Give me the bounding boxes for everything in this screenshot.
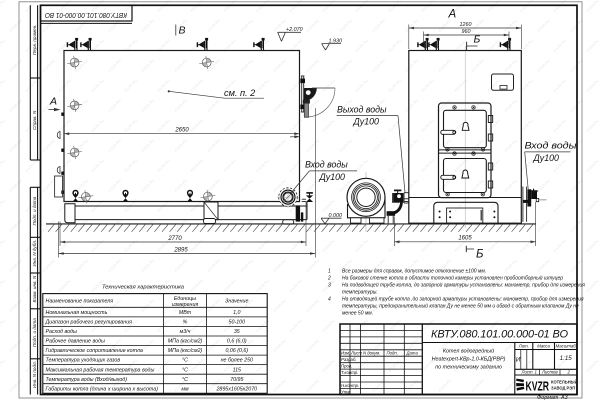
svg-text:Б: Б: [476, 249, 484, 261]
svg-text:KVZR: KVZR: [526, 379, 550, 394]
svg-text:KVZR.RU: KVZR.RU: [586, 238, 600, 252]
svg-text:KVZR.RU: KVZR.RU: [586, 198, 600, 212]
svg-text:KVZR.RU: KVZR.RU: [141, 298, 155, 312]
svg-text:+2.070: +2.070: [286, 27, 303, 33]
svg-text:KVZR.RU: KVZR.RU: [471, 138, 485, 152]
svg-text:Значение: Значение: [225, 299, 248, 305]
svg-text:KVZR.RU: KVZR.RU: [504, 18, 518, 32]
svg-text:МПа (кгс/см2): МПа (кгс/см2): [168, 348, 203, 354]
svg-text:мм: мм: [181, 386, 189, 392]
svg-text:KVZR.RU: KVZR.RU: [273, 98, 287, 112]
svg-text:KVZR.RU: KVZR.RU: [586, 278, 600, 292]
svg-text:KVZR.RU: KVZR.RU: [322, 358, 336, 372]
svg-text:Инв. N подл.: Инв. N подл.: [32, 361, 37, 388]
svg-text:KVZR.RU: KVZR.RU: [289, 158, 303, 172]
svg-text:KVZR.RU: KVZR.RU: [504, 258, 518, 272]
svg-text:%: %: [183, 320, 188, 326]
svg-text:°С: °С: [182, 377, 188, 383]
svg-text:KVZR.RU: KVZR.RU: [537, 218, 551, 232]
svg-text:KVZR.RU: KVZR.RU: [42, 138, 56, 152]
svg-text:KVZR.RU: KVZR.RU: [157, 158, 171, 172]
svg-text:KVZR.RU: KVZR.RU: [207, 258, 221, 272]
svg-text:KVZR.RU: KVZR.RU: [190, 318, 204, 332]
svg-text:0,6 (6,0): 0,6 (6,0): [227, 339, 247, 345]
svg-text:KVZR.RU: KVZR.RU: [405, 178, 419, 192]
svg-text:KVZR.RU: KVZR.RU: [58, 78, 72, 92]
svg-text:KVZR.RU: KVZR.RU: [91, 118, 105, 132]
svg-text:KVZR.RU: KVZR.RU: [256, 318, 270, 332]
svg-text:KVZR.RU: KVZR.RU: [58, 278, 72, 292]
svg-text:Лист: Лист: [350, 351, 362, 356]
svg-text:KVZR.RU: KVZR.RU: [372, 138, 386, 152]
svg-text:Утв.: Утв.: [341, 389, 351, 394]
svg-text:KVZR.RU: KVZR.RU: [207, 138, 221, 152]
svg-text:Лист: Лист: [521, 370, 533, 375]
svg-text:KVZR.RU: KVZR.RU: [586, 0, 600, 13]
svg-text:KVZR.RU: KVZR.RU: [454, 198, 468, 212]
svg-text:KVZR.RU: KVZR.RU: [553, 198, 567, 212]
svg-text:KVZR.RU: KVZR.RU: [75, 258, 89, 272]
svg-text:КОТЕЛЬНЫЙ: КОТЕЛЬНЫЙ: [551, 380, 578, 385]
svg-text:KVZR.RU: KVZR.RU: [174, 178, 188, 192]
svg-text:KVZR.RU: KVZR.RU: [174, 138, 188, 152]
svg-text:KVZR.RU: KVZR.RU: [174, 258, 188, 272]
svg-text:KVZR.RU: KVZR.RU: [9, 58, 23, 72]
svg-text:°С: °С: [182, 358, 188, 364]
svg-text:KVZR.RU: KVZR.RU: [190, 158, 204, 172]
svg-text:температуры.: температуры.: [342, 290, 378, 296]
svg-text:KVZR.RU: KVZR.RU: [174, 98, 188, 112]
svg-text:KVZR.RU: KVZR.RU: [108, 178, 122, 192]
svg-text:1605: 1605: [458, 236, 472, 242]
svg-text:KVZR.RU: KVZR.RU: [537, 58, 551, 72]
svg-text:KVZR.RU: KVZR.RU: [25, 78, 39, 92]
svg-text:KVZR.RU: KVZR.RU: [273, 18, 287, 32]
svg-text:KVZR.RU: KVZR.RU: [9, 98, 23, 112]
svg-text:KVZR.RU: KVZR.RU: [586, 358, 600, 372]
svg-text:KVZR.RU: KVZR.RU: [108, 258, 122, 272]
svg-text:KVZR.RU: KVZR.RU: [9, 338, 23, 352]
svg-text:KVZR.RU: KVZR.RU: [372, 18, 386, 32]
svg-text:KVZR.RU: KVZR.RU: [306, 18, 320, 32]
svg-text:KVZR.RU: KVZR.RU: [438, 138, 452, 152]
svg-text:KVZR.RU: KVZR.RU: [42, 258, 56, 272]
svg-text:KVZR.RU: KVZR.RU: [504, 98, 518, 112]
svg-text:KVZR.RU: KVZR.RU: [504, 378, 518, 392]
svg-text:KVZR.RU: KVZR.RU: [25, 158, 39, 172]
svg-text:KVZR.RU: KVZR.RU: [586, 318, 600, 332]
svg-text:KVZR.RU: KVZR.RU: [9, 138, 23, 152]
svg-text:Вход воды: Вход воды: [305, 160, 348, 170]
svg-text:Б: Б: [474, 34, 481, 46]
svg-text:KVZR.RU: KVZR.RU: [405, 378, 419, 392]
svg-text:Листов: Листов: [541, 370, 558, 375]
svg-text:Взам. инв. N: Взам. инв. N: [32, 275, 37, 302]
svg-text:KVZR.RU: KVZR.RU: [355, 78, 369, 92]
svg-text:KVZR.RU: KVZR.RU: [124, 158, 138, 172]
svg-text:KVZR.RU: KVZR.RU: [91, 158, 105, 172]
svg-text:KVZR.RU: KVZR.RU: [9, 178, 23, 192]
svg-text:KVZR.RU: KVZR.RU: [421, 78, 435, 92]
svg-text:KVZR.RU: KVZR.RU: [240, 98, 254, 112]
svg-text:KVZR.RU: KVZR.RU: [223, 118, 237, 132]
svg-text:KVZR.RU: KVZR.RU: [207, 98, 221, 112]
svg-text:KVZR.RU: KVZR.RU: [0, 78, 6, 92]
svg-text:МПа (кгс/см2): МПа (кгс/см2): [168, 339, 203, 345]
svg-text:А3: А3: [560, 395, 568, 400]
svg-text:Температура уходящих газов: Температура уходящих газов: [46, 358, 121, 364]
svg-text:35: 35: [234, 329, 240, 335]
svg-text:0.000: 0.000: [329, 213, 343, 219]
svg-text:N докум.: N докум.: [363, 351, 380, 356]
svg-text:Вход воды: Вход воды: [525, 141, 577, 151]
svg-text:KVZR.RU: KVZR.RU: [553, 118, 567, 132]
svg-text:KVZR.RU: KVZR.RU: [141, 138, 155, 152]
svg-text:KVZR.RU: KVZR.RU: [438, 378, 452, 392]
svg-text:А: А: [49, 96, 57, 108]
svg-text:Гидравлическое сопротивление к: Гидравлическое сопротивление котла: [46, 348, 143, 354]
svg-text:по техническому заданию: по техническому заданию: [435, 364, 502, 370]
svg-text:KVZR.RU: KVZR.RU: [256, 358, 270, 372]
svg-text:1:15: 1:15: [560, 355, 573, 362]
svg-text:2895: 2895: [173, 247, 188, 253]
svg-text:KVZR.RU: KVZR.RU: [207, 298, 221, 312]
svg-text:KVZR.RU: KVZR.RU: [223, 158, 237, 172]
svg-text:Изм.: Изм.: [341, 351, 350, 356]
svg-text:KVZR.RU: KVZR.RU: [322, 118, 336, 132]
svg-text:KVZR.RU: KVZR.RU: [322, 238, 336, 252]
svg-text:KVZR.RU: KVZR.RU: [322, 198, 336, 212]
svg-text:115: 115: [233, 367, 241, 373]
svg-text:KVZR.RU: KVZR.RU: [289, 238, 303, 252]
svg-text:2895х1605х2070: 2895х1605х2070: [215, 386, 257, 392]
svg-text:Техническая характеристика: Техническая характеристика: [102, 285, 185, 291]
svg-text:Пров.: Пров.: [341, 364, 352, 369]
svg-text:KVZR.RU: KVZR.RU: [207, 18, 221, 32]
svg-text:KVZR.RU: KVZR.RU: [520, 238, 534, 252]
svg-text:см. п. 2: см. п. 2: [224, 88, 255, 98]
svg-text:KVZR.RU: KVZR.RU: [124, 118, 138, 132]
svg-text:KVZR.RU: KVZR.RU: [537, 98, 551, 112]
svg-text:KVZR.RU: KVZR.RU: [520, 38, 534, 52]
svg-text:KVZR.RU: KVZR.RU: [256, 278, 270, 292]
svg-text:KVZR.RU: KVZR.RU: [108, 138, 122, 152]
svg-text:KVZR.RU: KVZR.RU: [289, 358, 303, 372]
svg-text:KVZR.RU: KVZR.RU: [471, 18, 485, 32]
svg-text:KVZR.RU: KVZR.RU: [0, 358, 6, 372]
svg-text:KVZR.RU: KVZR.RU: [273, 138, 287, 152]
svg-text:3: 3: [328, 283, 331, 289]
svg-text:КВТУ.080.101.00.000-01 ВО: КВТУ.080.101.00.000-01 ВО: [431, 328, 568, 340]
svg-text:960: 960: [462, 29, 471, 35]
svg-text:KVZR.RU: KVZR.RU: [388, 358, 402, 372]
svg-text:KVZR.RU: KVZR.RU: [256, 158, 270, 172]
svg-text:KVZR.RU: KVZR.RU: [223, 278, 237, 292]
svg-text:температуры, предохранительный: температуры, предохранительный клапан Ду…: [342, 303, 579, 310]
svg-text:KVZR.RU: KVZR.RU: [339, 58, 353, 72]
svg-text:KVZR.RU: KVZR.RU: [586, 38, 600, 52]
svg-text:Ду100: Ду100: [319, 172, 345, 182]
svg-text:KVZR.RU: KVZR.RU: [124, 238, 138, 252]
svg-text:KVZR.RU: KVZR.RU: [504, 58, 518, 72]
svg-text:Диапазон рабочего регулировани: Диапазон рабочего регулирования: [45, 320, 133, 326]
svg-text:KVZR.RU: KVZR.RU: [388, 38, 402, 52]
svg-text:Т.контр.: Т.контр.: [341, 370, 358, 375]
svg-text:KVZR.RU: KVZR.RU: [0, 198, 6, 212]
svg-text:1: 1: [328, 269, 331, 275]
svg-text:KVZR.RU: KVZR.RU: [537, 18, 551, 32]
svg-text:KVZR.RU: KVZR.RU: [306, 258, 320, 272]
svg-text:0,06 (0,6): 0,06 (0,6): [225, 348, 248, 354]
svg-text:KVZR.RU: KVZR.RU: [471, 178, 485, 192]
svg-text:KVZR.RU: KVZR.RU: [141, 58, 155, 72]
svg-text:Подп. и дата: Подп. и дата: [32, 318, 37, 347]
svg-text:2650: 2650: [174, 128, 189, 134]
svg-text:KVZR.RU: KVZR.RU: [355, 158, 369, 172]
svg-text:KVZR.RU: KVZR.RU: [339, 18, 353, 32]
svg-text:4: 4: [328, 297, 331, 303]
svg-text:Лит.: Лит.: [518, 344, 529, 349]
svg-text:KVZR.RU: KVZR.RU: [553, 78, 567, 92]
svg-text:KVZR.RU: KVZR.RU: [42, 178, 56, 192]
svg-text:KVZR.RU: KVZR.RU: [207, 178, 221, 192]
svg-text:KVZR.RU: KVZR.RU: [0, 118, 6, 132]
svg-text:не более 250: не более 250: [221, 358, 253, 364]
svg-text:KVZR.RU: KVZR.RU: [157, 118, 171, 132]
svg-text:KVZR.RU: KVZR.RU: [471, 58, 485, 72]
svg-text:МВт: МВт: [179, 310, 192, 316]
svg-text:KVZR.RU: KVZR.RU: [438, 18, 452, 32]
svg-text:KVZR.RU: KVZR.RU: [388, 238, 402, 252]
svg-text:KVZR.RU: KVZR.RU: [0, 38, 6, 52]
svg-text:KVZR.RU: KVZR.RU: [438, 218, 452, 232]
svg-text:KVZR.RU: KVZR.RU: [9, 258, 23, 272]
svg-text:KVZR.RU: KVZR.RU: [0, 158, 6, 172]
svg-text:Котел водогрейный: Котел водогрейный: [443, 347, 494, 354]
svg-text:KVZR.RU: KVZR.RU: [504, 138, 518, 152]
svg-text:KVZR.RU: KVZR.RU: [405, 218, 419, 232]
svg-text:KVZR.RU: KVZR.RU: [141, 258, 155, 272]
svg-text:KVZR.RU: KVZR.RU: [520, 118, 534, 132]
svg-text:KVZR.RU: KVZR.RU: [9, 298, 23, 312]
svg-text:KVZR.RU: KVZR.RU: [553, 38, 567, 52]
svg-text:KVZR.RU: KVZR.RU: [190, 78, 204, 92]
svg-text:KVZR.RU: KVZR.RU: [487, 118, 501, 132]
svg-text:KVZR.RU: KVZR.RU: [108, 98, 122, 112]
svg-text:На отводящей трубе котла ,до з: На отводящей трубе котла ,до запорной ар…: [342, 296, 584, 303]
svg-text:Рабочее давление воды: Рабочее давление воды: [46, 339, 105, 345]
svg-text:KVZR.RU: KVZR.RU: [91, 78, 105, 92]
svg-text:KVZR.RU: KVZR.RU: [355, 38, 369, 52]
svg-text:KVZR.RU: KVZR.RU: [9, 378, 23, 392]
svg-text:KVZR.RU: KVZR.RU: [223, 238, 237, 252]
svg-text:KVZR.RU: KVZR.RU: [174, 58, 188, 72]
svg-text:KVZR.RU: KVZR.RU: [256, 78, 270, 92]
svg-text:KVZR.RU: KVZR.RU: [421, 118, 435, 132]
svg-text:KVZR.RU: KVZR.RU: [438, 58, 452, 72]
svg-text:Все размеры для справок, допус: Все размеры для справок, допустимое откл…: [342, 269, 486, 275]
svg-text:KVZR.RU: KVZR.RU: [306, 298, 320, 312]
svg-text:Справ. N: Справ. N: [32, 110, 37, 130]
svg-text:KVZR.RU: KVZR.RU: [487, 198, 501, 212]
svg-text:KVZR.RU: KVZR.RU: [421, 158, 435, 172]
svg-text:KVZR.RU: KVZR.RU: [487, 158, 501, 172]
svg-text:Инв. N дубл.: Инв. N дубл.: [32, 240, 37, 267]
svg-text:KVZR.RU: KVZR.RU: [504, 338, 518, 352]
svg-text:1: 1: [535, 370, 538, 375]
svg-text:Дата: Дата: [406, 351, 419, 356]
svg-text:KVZR.RU: KVZR.RU: [421, 198, 435, 212]
svg-text:На боковой стенке котла в обла: На боковой стенке котла в области топочн…: [342, 275, 563, 282]
svg-text:Ду100: Ду100: [533, 153, 559, 163]
svg-text:1,0: 1,0: [233, 310, 240, 316]
svg-text:KVZR.RU: KVZR.RU: [240, 138, 254, 152]
svg-text:Н.контр.: Н.контр.: [341, 383, 359, 388]
svg-text:Габариты котла (длина х ширина: Габариты котла (длина х ширина х высота): [46, 386, 159, 392]
svg-text:KVZR.RU: KVZR.RU: [124, 78, 138, 92]
svg-text:КВТУ.080.101.00.000-01 ВО: КВТУ.080.101.00.000-01 ВО: [45, 11, 127, 20]
svg-text:KVZR.RU: KVZR.RU: [289, 318, 303, 332]
svg-text:KVZR.RU: KVZR.RU: [306, 138, 320, 152]
svg-text:KVZR.RU: KVZR.RU: [355, 238, 369, 252]
svg-text:KVZR.RU: KVZR.RU: [388, 118, 402, 132]
svg-text:KVZR.RU: KVZR.RU: [157, 358, 171, 372]
svg-text:KVZR.RU: KVZR.RU: [256, 238, 270, 252]
svg-text:KVZR.RU: KVZR.RU: [190, 238, 204, 252]
svg-text:50-100: 50-100: [229, 320, 246, 326]
svg-text:KVZR.RU: KVZR.RU: [58, 118, 72, 132]
svg-text:Масштаб: Масштаб: [556, 344, 577, 349]
svg-text:Выход воды: Выход воды: [337, 105, 387, 115]
svg-text:KVZR.RU: KVZR.RU: [388, 78, 402, 92]
svg-text:KVZR.RU: KVZR.RU: [553, 238, 567, 252]
svg-text:KVZR.RU: KVZR.RU: [388, 158, 402, 172]
svg-text:KVZR.RU: KVZR.RU: [256, 118, 270, 132]
svg-text:ЗАВОД РЭП: ЗАВОД РЭП: [551, 386, 575, 391]
svg-text:KVZR.RU: KVZR.RU: [91, 238, 105, 252]
svg-text:KVZR.RU: KVZR.RU: [273, 298, 287, 312]
svg-text:На подводящей трубе котла, д: На подводящей трубе котла, до запорной а…: [342, 282, 585, 289]
svg-text:KVZR.RU: KVZR.RU: [9, 18, 23, 32]
svg-text:KVZR.RU: KVZR.RU: [520, 158, 534, 172]
svg-text:KVZR.RU: KVZR.RU: [141, 98, 155, 112]
svg-text:KVZR.RU: KVZR.RU: [306, 378, 320, 392]
svg-text:KVZR.RU: KVZR.RU: [273, 338, 287, 352]
svg-text:KVZR.RU: KVZR.RU: [240, 58, 254, 72]
svg-text:м3/ч: м3/ч: [180, 329, 191, 335]
svg-text:KVZR.RU: KVZR.RU: [487, 238, 501, 252]
svg-text:KVZR.RU: KVZR.RU: [504, 218, 518, 232]
svg-text:KVZR.RU: KVZR.RU: [586, 78, 600, 92]
svg-text:KVZR.RU: KVZR.RU: [157, 318, 171, 332]
svg-text:KVZR.RU: KVZR.RU: [306, 338, 320, 352]
svg-text:И: И: [516, 357, 521, 364]
svg-text:KVZR.RU: KVZR.RU: [190, 118, 204, 132]
svg-text:KVZR.RU: KVZR.RU: [273, 378, 287, 392]
svg-text:Подп. и дата: Подп. и дата: [32, 196, 37, 225]
svg-text:KVZR.RU: KVZR.RU: [42, 58, 56, 72]
svg-text:KVZR.RU: KVZR.RU: [372, 58, 386, 72]
svg-text:KVZR.RU: KVZR.RU: [306, 178, 320, 192]
svg-text:2: 2: [327, 276, 331, 282]
svg-text:В: В: [179, 25, 186, 37]
svg-text:KVZR.RU: KVZR.RU: [141, 178, 155, 192]
svg-text:KVZR.RU: KVZR.RU: [586, 158, 600, 172]
svg-text:Номинальная мощность: Номинальная мощность: [46, 310, 108, 316]
svg-text:KVZR.RU: KVZR.RU: [289, 118, 303, 132]
svg-text:KVZR.RU: KVZR.RU: [454, 78, 468, 92]
svg-text:KVZR.RU: KVZR.RU: [471, 378, 485, 392]
svg-text:1260: 1260: [460, 22, 472, 28]
svg-text:KVZR.RU: KVZR.RU: [9, 218, 23, 232]
svg-text:Наименование показателя: Наименование показателя: [46, 299, 114, 305]
svg-text:А: А: [448, 9, 457, 21]
svg-text:KVZR.RU: KVZR.RU: [273, 58, 287, 72]
svg-text:KVZR.RU: KVZR.RU: [240, 18, 254, 32]
svg-text:Heatexpert-КВр-1,0-КБД(РВР): Heatexpert-КВр-1,0-КБД(РВР): [432, 357, 506, 363]
svg-text:KVZR.RU: KVZR.RU: [0, 238, 6, 252]
svg-text:70/95: 70/95: [230, 377, 243, 383]
svg-text:KVZR.RU: KVZR.RU: [405, 98, 419, 112]
svg-text:KVZR.RU: KVZR.RU: [339, 138, 353, 152]
svg-text:KVZR.RU: KVZR.RU: [306, 218, 320, 232]
svg-text:KVZR.RU: KVZR.RU: [306, 58, 320, 72]
svg-text:2770: 2770: [167, 236, 182, 242]
svg-text:KVZR.RU: KVZR.RU: [190, 278, 204, 292]
svg-text:KVZR.RU: KVZR.RU: [421, 238, 435, 252]
svg-text:KVZR.RU: KVZR.RU: [322, 318, 336, 332]
svg-text:2: 2: [567, 370, 571, 375]
svg-text:KVZR.RU: KVZR.RU: [75, 98, 89, 112]
svg-text:KVZR.RU: KVZR.RU: [586, 118, 600, 132]
svg-text:Ду100: Ду100: [353, 117, 379, 127]
svg-text:Перв. примен.: Перв. примен.: [32, 24, 37, 55]
svg-text:KVZR.RU: KVZR.RU: [289, 278, 303, 292]
svg-text:KVZR.RU: KVZR.RU: [273, 258, 287, 272]
svg-text:Разраб.: Разраб.: [341, 357, 357, 362]
svg-text:KVZR.RU: KVZR.RU: [108, 58, 122, 72]
svg-text:KVZR.RU: KVZR.RU: [405, 18, 419, 32]
svg-text:Температура воды (Вход/выход): Температура воды (Вход/выход): [46, 377, 128, 383]
svg-text:KVZR.RU: KVZR.RU: [537, 178, 551, 192]
svg-text:Расход воды: Расход воды: [46, 329, 77, 335]
svg-text:KVZR.RU: KVZR.RU: [405, 138, 419, 152]
svg-text:измерения: измерения: [172, 302, 199, 308]
svg-text:KVZR.RU: KVZR.RU: [240, 178, 254, 192]
svg-text:KVZR.RU: KVZR.RU: [190, 358, 204, 372]
svg-text:Подп.: Подп.: [387, 351, 398, 356]
svg-text:°С: °С: [182, 367, 188, 373]
svg-text:KVZR.RU: KVZR.RU: [322, 78, 336, 92]
svg-text:KVZR.RU: KVZR.RU: [537, 258, 551, 272]
svg-text:KVZR.RU: KVZR.RU: [0, 278, 6, 292]
svg-text:KVZR.RU: KVZR.RU: [504, 178, 518, 192]
svg-text:1.930: 1.930: [329, 39, 343, 45]
svg-text:KVZR.RU: KVZR.RU: [520, 78, 534, 92]
svg-text:KVZR.RU: KVZR.RU: [405, 58, 419, 72]
svg-text:KVZR.RU: KVZR.RU: [438, 178, 452, 192]
svg-text:KVZR.RU: KVZR.RU: [141, 18, 155, 32]
svg-text:KVZR.RU: KVZR.RU: [240, 258, 254, 272]
svg-text:Формат: Формат: [537, 395, 559, 400]
svg-text:KVZR.RU: KVZR.RU: [0, 0, 6, 13]
svg-text:менее 50 мм.: менее 50 мм.: [342, 311, 373, 317]
svg-text:KVZR.RU: KVZR.RU: [0, 318, 6, 332]
svg-text:Масса: Масса: [537, 344, 550, 349]
svg-text:Максимальная рабочая температу: Максимальная рабочая температура воды: [46, 367, 155, 373]
